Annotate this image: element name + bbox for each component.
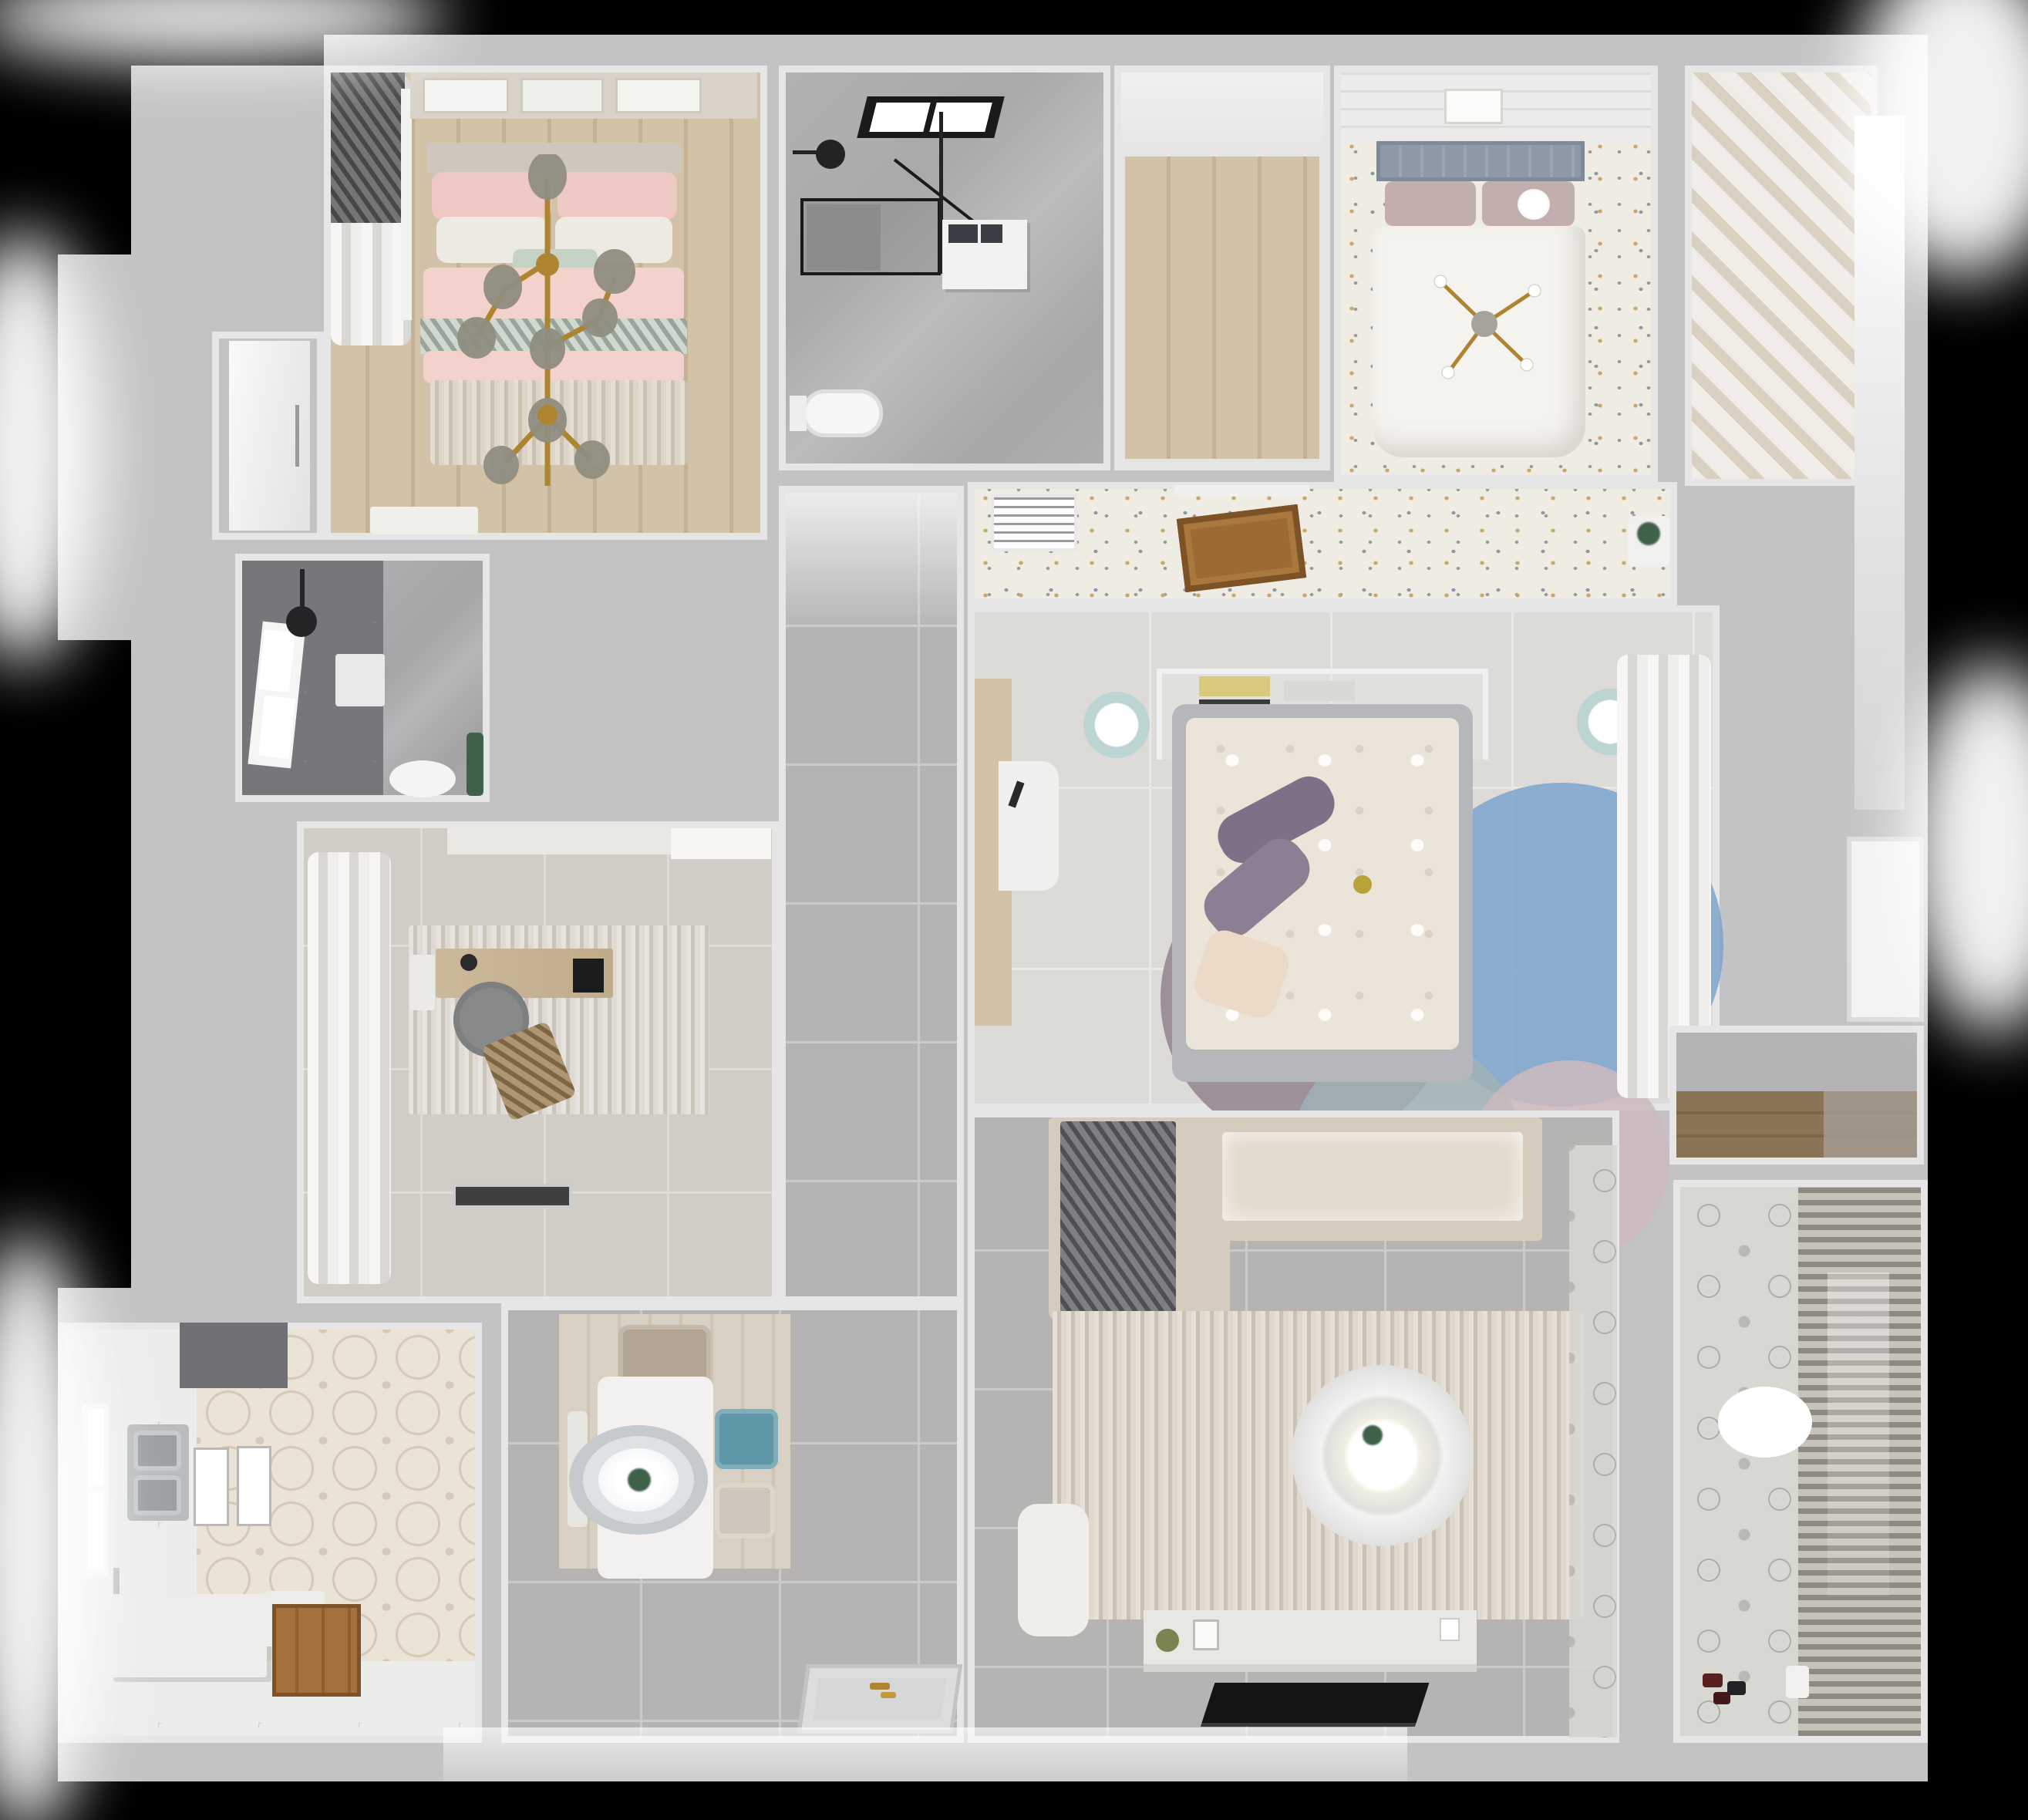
room-vestibule — [968, 482, 1677, 605]
toy-car-icon — [1703, 1673, 1723, 1687]
room-guest-bedroom — [1334, 66, 1658, 482]
washer-control-panel — [981, 224, 1002, 243]
tv-flat-black — [1202, 1683, 1430, 1723]
watering-can-icon — [1786, 1666, 1809, 1698]
room-kitchen — [58, 1323, 482, 1743]
room-wardrobe-cabinet — [1685, 66, 1878, 486]
shower-arm — [793, 150, 828, 154]
window-pane — [258, 629, 295, 693]
wall-cabinet-light — [671, 828, 771, 859]
hallway-light-sheen — [786, 493, 957, 632]
ceiling-sheen — [1121, 72, 1323, 157]
sheer-curtains — [308, 852, 391, 1284]
toy-car-icon — [1713, 1692, 1730, 1704]
keys-gold-icon — [881, 1692, 896, 1698]
gold-branch-chandelier-icon — [432, 154, 663, 494]
skylight-pane — [869, 103, 930, 132]
patterned-tile-strip — [1569, 1145, 1617, 1737]
books-on-shelf — [1199, 676, 1270, 696]
toilet-icon — [802, 389, 883, 437]
chair-beige-right — [715, 1483, 775, 1539]
laptop-icon — [573, 959, 604, 993]
sofa-seat-cushions — [1222, 1132, 1523, 1221]
wood-floor — [1125, 157, 1319, 459]
table-plant — [1363, 1425, 1383, 1445]
silhouette-cutout — [58, 66, 131, 254]
wood-entry-inset — [272, 1604, 361, 1697]
floor-plan-stage — [0, 0, 2028, 1820]
console-decor-green-disc — [1156, 1629, 1179, 1652]
toilet-icon — [389, 760, 456, 797]
door-handle — [295, 405, 299, 467]
room-kids-bedroom — [968, 605, 1720, 1111]
roman-blind — [331, 72, 405, 223]
room-dining-area — [501, 1303, 964, 1743]
entry-doormat — [797, 1664, 963, 1734]
plant-green — [1637, 522, 1660, 545]
room-hallway — [779, 486, 964, 1303]
room-living-room — [968, 1111, 1619, 1743]
shower-marble-dark — [807, 204, 881, 271]
range-hood-block — [180, 1323, 288, 1388]
toilet-tank — [790, 396, 807, 431]
washer-control-panel — [948, 224, 978, 243]
shower-arm — [300, 569, 305, 612]
room-storage-niche — [1669, 1026, 1924, 1164]
plant-green — [467, 733, 483, 796]
console-decor-vase — [1440, 1618, 1460, 1641]
entry-light-sheen — [443, 1727, 1407, 1781]
console-decor-frames — [1193, 1619, 1219, 1650]
cabinet-light-section — [1824, 1091, 1917, 1158]
art-frame — [520, 78, 604, 113]
art-frame — [615, 78, 702, 113]
glass-light-panel — [194, 1448, 229, 1526]
wall-cabinet — [447, 828, 671, 854]
throw-blanket — [1060, 1121, 1176, 1313]
room-main-bathroom — [779, 66, 1110, 470]
bed-headboard-slatted — [1376, 141, 1585, 181]
chair-teal — [715, 1409, 778, 1469]
white-desk — [999, 761, 1059, 891]
gold-knob — [1353, 875, 1372, 894]
art-frame — [423, 78, 509, 113]
desk-lamp — [460, 954, 477, 971]
pouf-icon — [1083, 692, 1150, 758]
desk-chair-panel — [410, 955, 435, 1010]
open-wood-door — [1177, 504, 1307, 593]
mauve-pillow — [1385, 181, 1476, 226]
sink-basin-icon — [133, 1475, 181, 1515]
doormat-dark — [453, 1184, 572, 1208]
room-study — [297, 821, 779, 1303]
ac-vent-grille-icon — [991, 494, 1077, 551]
glass-light-panel — [237, 1446, 271, 1526]
apartment-plan — [58, 35, 1928, 1781]
room-master-bedroom — [324, 66, 767, 540]
art-frame — [1444, 89, 1503, 124]
window-sill — [401, 89, 412, 320]
room-shower-room — [235, 554, 490, 802]
shower-tray — [335, 654, 385, 706]
room-entry-door-niche — [212, 332, 324, 540]
keys-gold-icon — [870, 1683, 890, 1690]
sink-basin-icon — [133, 1431, 181, 1471]
coffee-table-icon — [1292, 1365, 1473, 1546]
room-walk-in-closet — [1114, 66, 1330, 470]
door-frame-gap — [1174, 485, 1309, 496]
room-balcony — [1673, 1180, 1928, 1743]
blinds-glass-sheen — [1828, 1272, 1889, 1596]
ball-lamp-icon — [1518, 189, 1550, 220]
silhouette-cutout — [58, 640, 131, 1288]
white-armchair — [1018, 1504, 1089, 1636]
shower-head-icon — [816, 140, 845, 169]
white-counter — [109, 1594, 267, 1677]
plant-centerpiece — [628, 1468, 651, 1491]
gold-four-arm-chandelier-icon — [1411, 251, 1558, 397]
window-pane — [258, 696, 295, 759]
ceiling-lamp-icon — [1718, 1387, 1812, 1458]
vanity-desk — [370, 507, 478, 534]
